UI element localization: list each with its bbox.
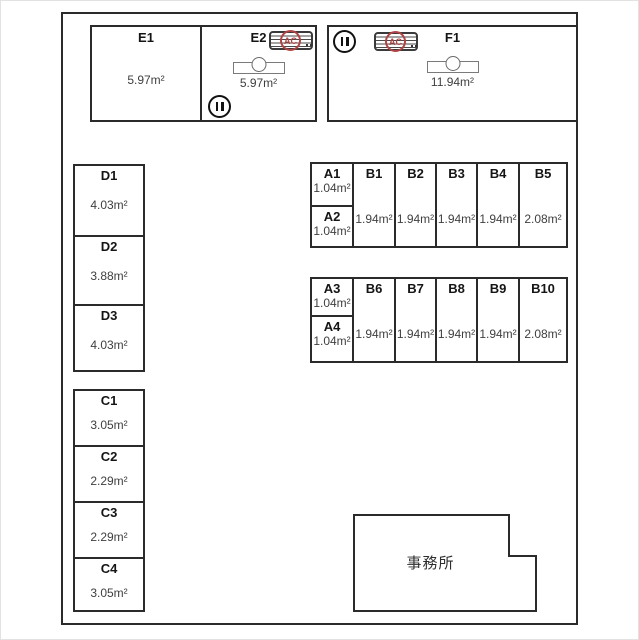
room-block-c: C1 3.05m² C2 2.29m² C3 2.29m² C4 3.05m² [73, 389, 145, 612]
unit-label: A3 [312, 281, 352, 296]
unit-B1: B1 1.94m² [354, 164, 396, 246]
unit-area: 1.94m² [437, 212, 476, 226]
room-block-e: E1 5.97m² E2 AC 5.97m² [90, 25, 317, 122]
unit-area: 3.05m² [75, 586, 143, 600]
unit-area: 2.29m² [75, 530, 143, 544]
unit-A3: A3 1.04m² [312, 279, 352, 317]
unit-B10: B10 2.08m² [520, 279, 566, 361]
unit-label: B5 [520, 166, 566, 181]
unit-area: 1.04m² [312, 334, 352, 348]
floor-plan-canvas: E1 5.97m² E2 AC 5.97m² AC F1 11.94m² D1 … [0, 0, 639, 640]
unit-C4: C4 3.05m² [75, 557, 143, 610]
shutter-circle-icon [208, 95, 231, 118]
office-label: 事務所 [353, 514, 508, 611]
unit-label: A4 [312, 319, 352, 334]
unit-label: B2 [396, 166, 435, 181]
unit-B4: B4 1.94m² [478, 164, 520, 246]
unit-label: B7 [396, 281, 435, 296]
sink-fixture-icon [233, 62, 285, 74]
unit-label: D2 [75, 239, 143, 254]
unit-D3: D3 4.03m² [75, 304, 143, 370]
sink-fixture-icon [427, 61, 479, 73]
ac-dots-icon [411, 45, 413, 47]
unit-label: B10 [520, 281, 566, 296]
unit-area: 1.94m² [437, 327, 476, 341]
room-block-ab-upper: A1 1.04m² A2 1.04m² B1 1.94m² B2 1.94m² … [310, 162, 568, 248]
unit-label: B3 [437, 166, 476, 181]
unit-D1: D1 4.03m² [75, 166, 143, 235]
unit-label: D3 [75, 308, 143, 323]
unit-area: 2.08m² [520, 327, 566, 341]
unit-label: B6 [354, 281, 394, 296]
air-conditioner-icon: AC [269, 31, 313, 50]
unit-C2: C2 2.29m² [75, 445, 143, 501]
unit-B5: B5 2.08m² [520, 164, 566, 246]
ac-badge-icon: AC [385, 31, 406, 52]
unit-area: 4.03m² [75, 338, 143, 352]
unit-area: 1.94m² [478, 212, 518, 226]
a-column: A3 1.04m² A4 1.04m² [312, 279, 354, 361]
unit-label: C3 [75, 505, 143, 520]
unit-area: 11.94m² [329, 75, 576, 89]
shutter-circle-icon [333, 30, 356, 53]
unit-C1: C1 3.05m² [75, 391, 143, 445]
ac-dots-icon [306, 44, 308, 46]
unit-area: 1.94m² [396, 212, 435, 226]
unit-area: 1.04m² [312, 224, 352, 238]
unit-B2: B2 1.94m² [396, 164, 437, 246]
unit-B6: B6 1.94m² [354, 279, 396, 361]
unit-label: D1 [75, 168, 143, 183]
unit-area: 1.94m² [354, 327, 394, 341]
unit-label: F1 [329, 30, 576, 45]
unit-area: 2.29m² [75, 474, 143, 488]
unit-A1: A1 1.04m² [312, 164, 352, 207]
unit-B3: B3 1.94m² [437, 164, 478, 246]
room-block-ab-lower: A3 1.04m² A4 1.04m² B6 1.94m² B7 1.94m² … [310, 277, 568, 363]
unit-label: E1 [92, 30, 200, 45]
unit-area: 2.08m² [520, 212, 566, 226]
unit-area: 1.94m² [396, 327, 435, 341]
ac-badge-icon: AC [280, 30, 301, 51]
unit-area: 4.03m² [75, 198, 143, 212]
unit-label: C2 [75, 449, 143, 464]
unit-area: 1.94m² [354, 212, 394, 226]
unit-area: 3.88m² [75, 269, 143, 283]
unit-B8: B8 1.94m² [437, 279, 478, 361]
room-block-d: D1 4.03m² D2 3.88m² D3 4.03m² [73, 164, 145, 372]
unit-label: B8 [437, 281, 476, 296]
unit-label: C4 [75, 561, 143, 576]
unit-F1: AC F1 11.94m² [327, 25, 578, 122]
unit-B9: B9 1.94m² [478, 279, 520, 361]
unit-label: C1 [75, 393, 143, 408]
unit-label: A1 [312, 166, 352, 181]
unit-area: 5.97m² [92, 73, 200, 87]
unit-area: 3.05m² [75, 418, 143, 432]
unit-E2: E2 AC 5.97m² [202, 27, 315, 120]
unit-B7: B7 1.94m² [396, 279, 437, 361]
unit-label: B1 [354, 166, 394, 181]
unit-A2: A2 1.04m² [312, 207, 352, 246]
unit-area: 1.04m² [312, 296, 352, 310]
unit-label: B4 [478, 166, 518, 181]
unit-area: 1.04m² [312, 181, 352, 195]
unit-A4: A4 1.04m² [312, 317, 352, 361]
a-column: A1 1.04m² A2 1.04m² [312, 164, 354, 246]
unit-C3: C3 2.29m² [75, 501, 143, 557]
unit-area: 5.97m² [202, 76, 315, 90]
air-conditioner-icon: AC [374, 32, 418, 51]
unit-label: A2 [312, 209, 352, 224]
unit-D2: D2 3.88m² [75, 235, 143, 304]
unit-E1: E1 5.97m² [92, 27, 202, 120]
unit-area: 1.94m² [478, 327, 518, 341]
unit-label: B9 [478, 281, 518, 296]
